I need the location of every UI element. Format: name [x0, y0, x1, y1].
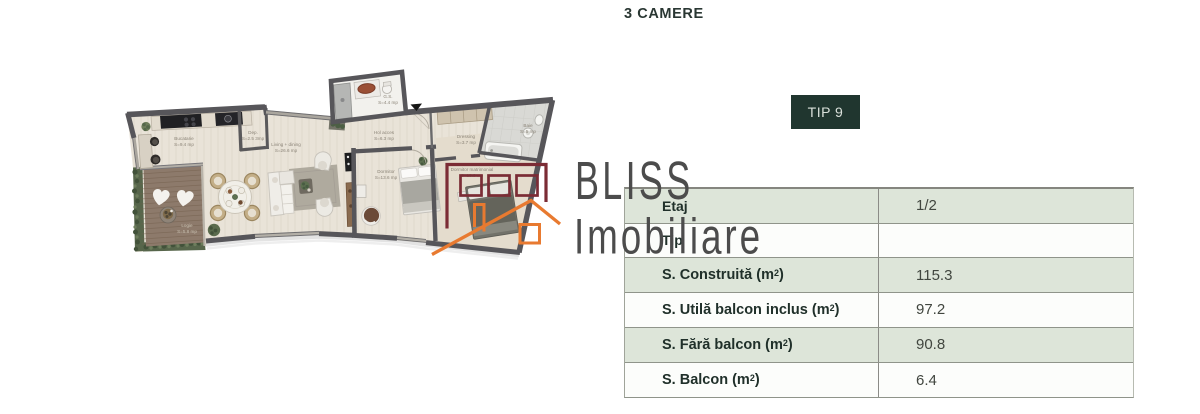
svg-text:S=9.4 mp: S=9.4 mp: [174, 142, 194, 147]
svg-text:Dormitor matrimonial: Dormitor matrimonial: [451, 167, 494, 172]
svg-text:S=3.7 mp: S=3.7 mp: [456, 140, 476, 145]
svg-text:Dormitor: Dormitor: [377, 169, 395, 174]
svg-text:Living + dining: Living + dining: [271, 142, 301, 147]
svg-text:S=26.6 mp: S=26.6 mp: [275, 148, 298, 153]
svg-text:S=5 mp: S=5 mp: [520, 129, 536, 134]
svg-text:BLISS: BLISS: [575, 151, 694, 211]
svg-text:Bucatarie: Bucatarie: [174, 136, 194, 141]
svg-text:Baie: Baie: [523, 123, 533, 128]
svg-text:S=4.4 mp: S=4.4 mp: [378, 100, 398, 105]
svg-text:S=2.5 3mp: S=2.5 3mp: [242, 136, 265, 141]
svg-text:G.S.: G.S.: [383, 94, 392, 99]
svg-text:Hol acces: Hol acces: [374, 130, 395, 135]
svg-text:S=6.3 mp: S=6.3 mp: [374, 136, 394, 141]
svg-text:Imobiliare: Imobiliare: [574, 208, 763, 265]
svg-text:Dressing: Dressing: [457, 134, 476, 139]
svg-text:S=13.6 mp: S=13.6 mp: [375, 175, 398, 180]
svg-text:Logie: Logie: [181, 223, 193, 228]
svg-text:Dep.: Dep.: [248, 130, 258, 135]
svg-text:S=5.8 mp: S=5.8 mp: [177, 229, 197, 234]
